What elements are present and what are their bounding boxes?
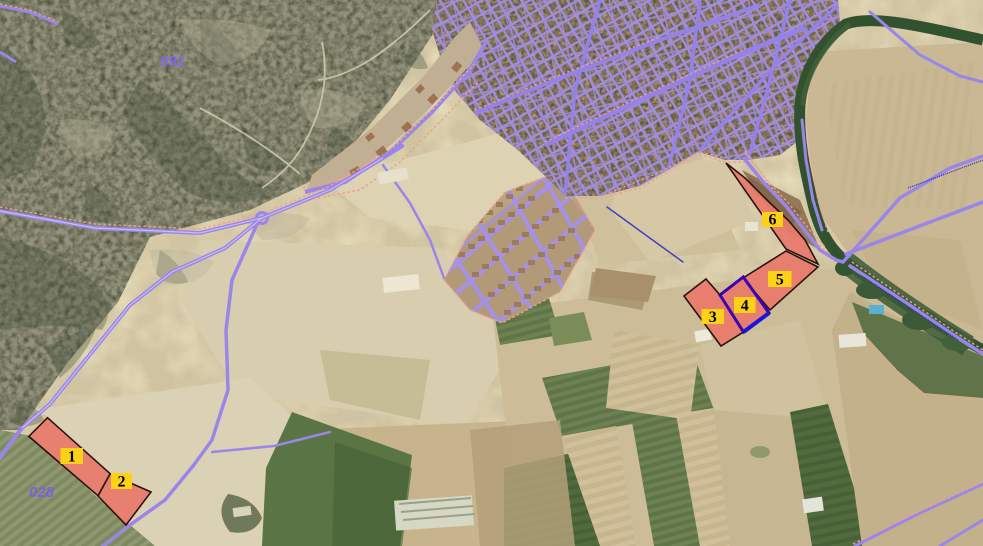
- svg-text:1: 1: [68, 449, 76, 466]
- svg-text:3: 3: [709, 309, 717, 326]
- svg-text:028: 028: [29, 484, 55, 501]
- svg-text:5: 5: [776, 272, 784, 289]
- svg-text:6: 6: [769, 212, 777, 229]
- svg-text:2: 2: [118, 474, 126, 491]
- svg-text:091: 091: [160, 53, 185, 70]
- svg-text:4: 4: [741, 298, 749, 315]
